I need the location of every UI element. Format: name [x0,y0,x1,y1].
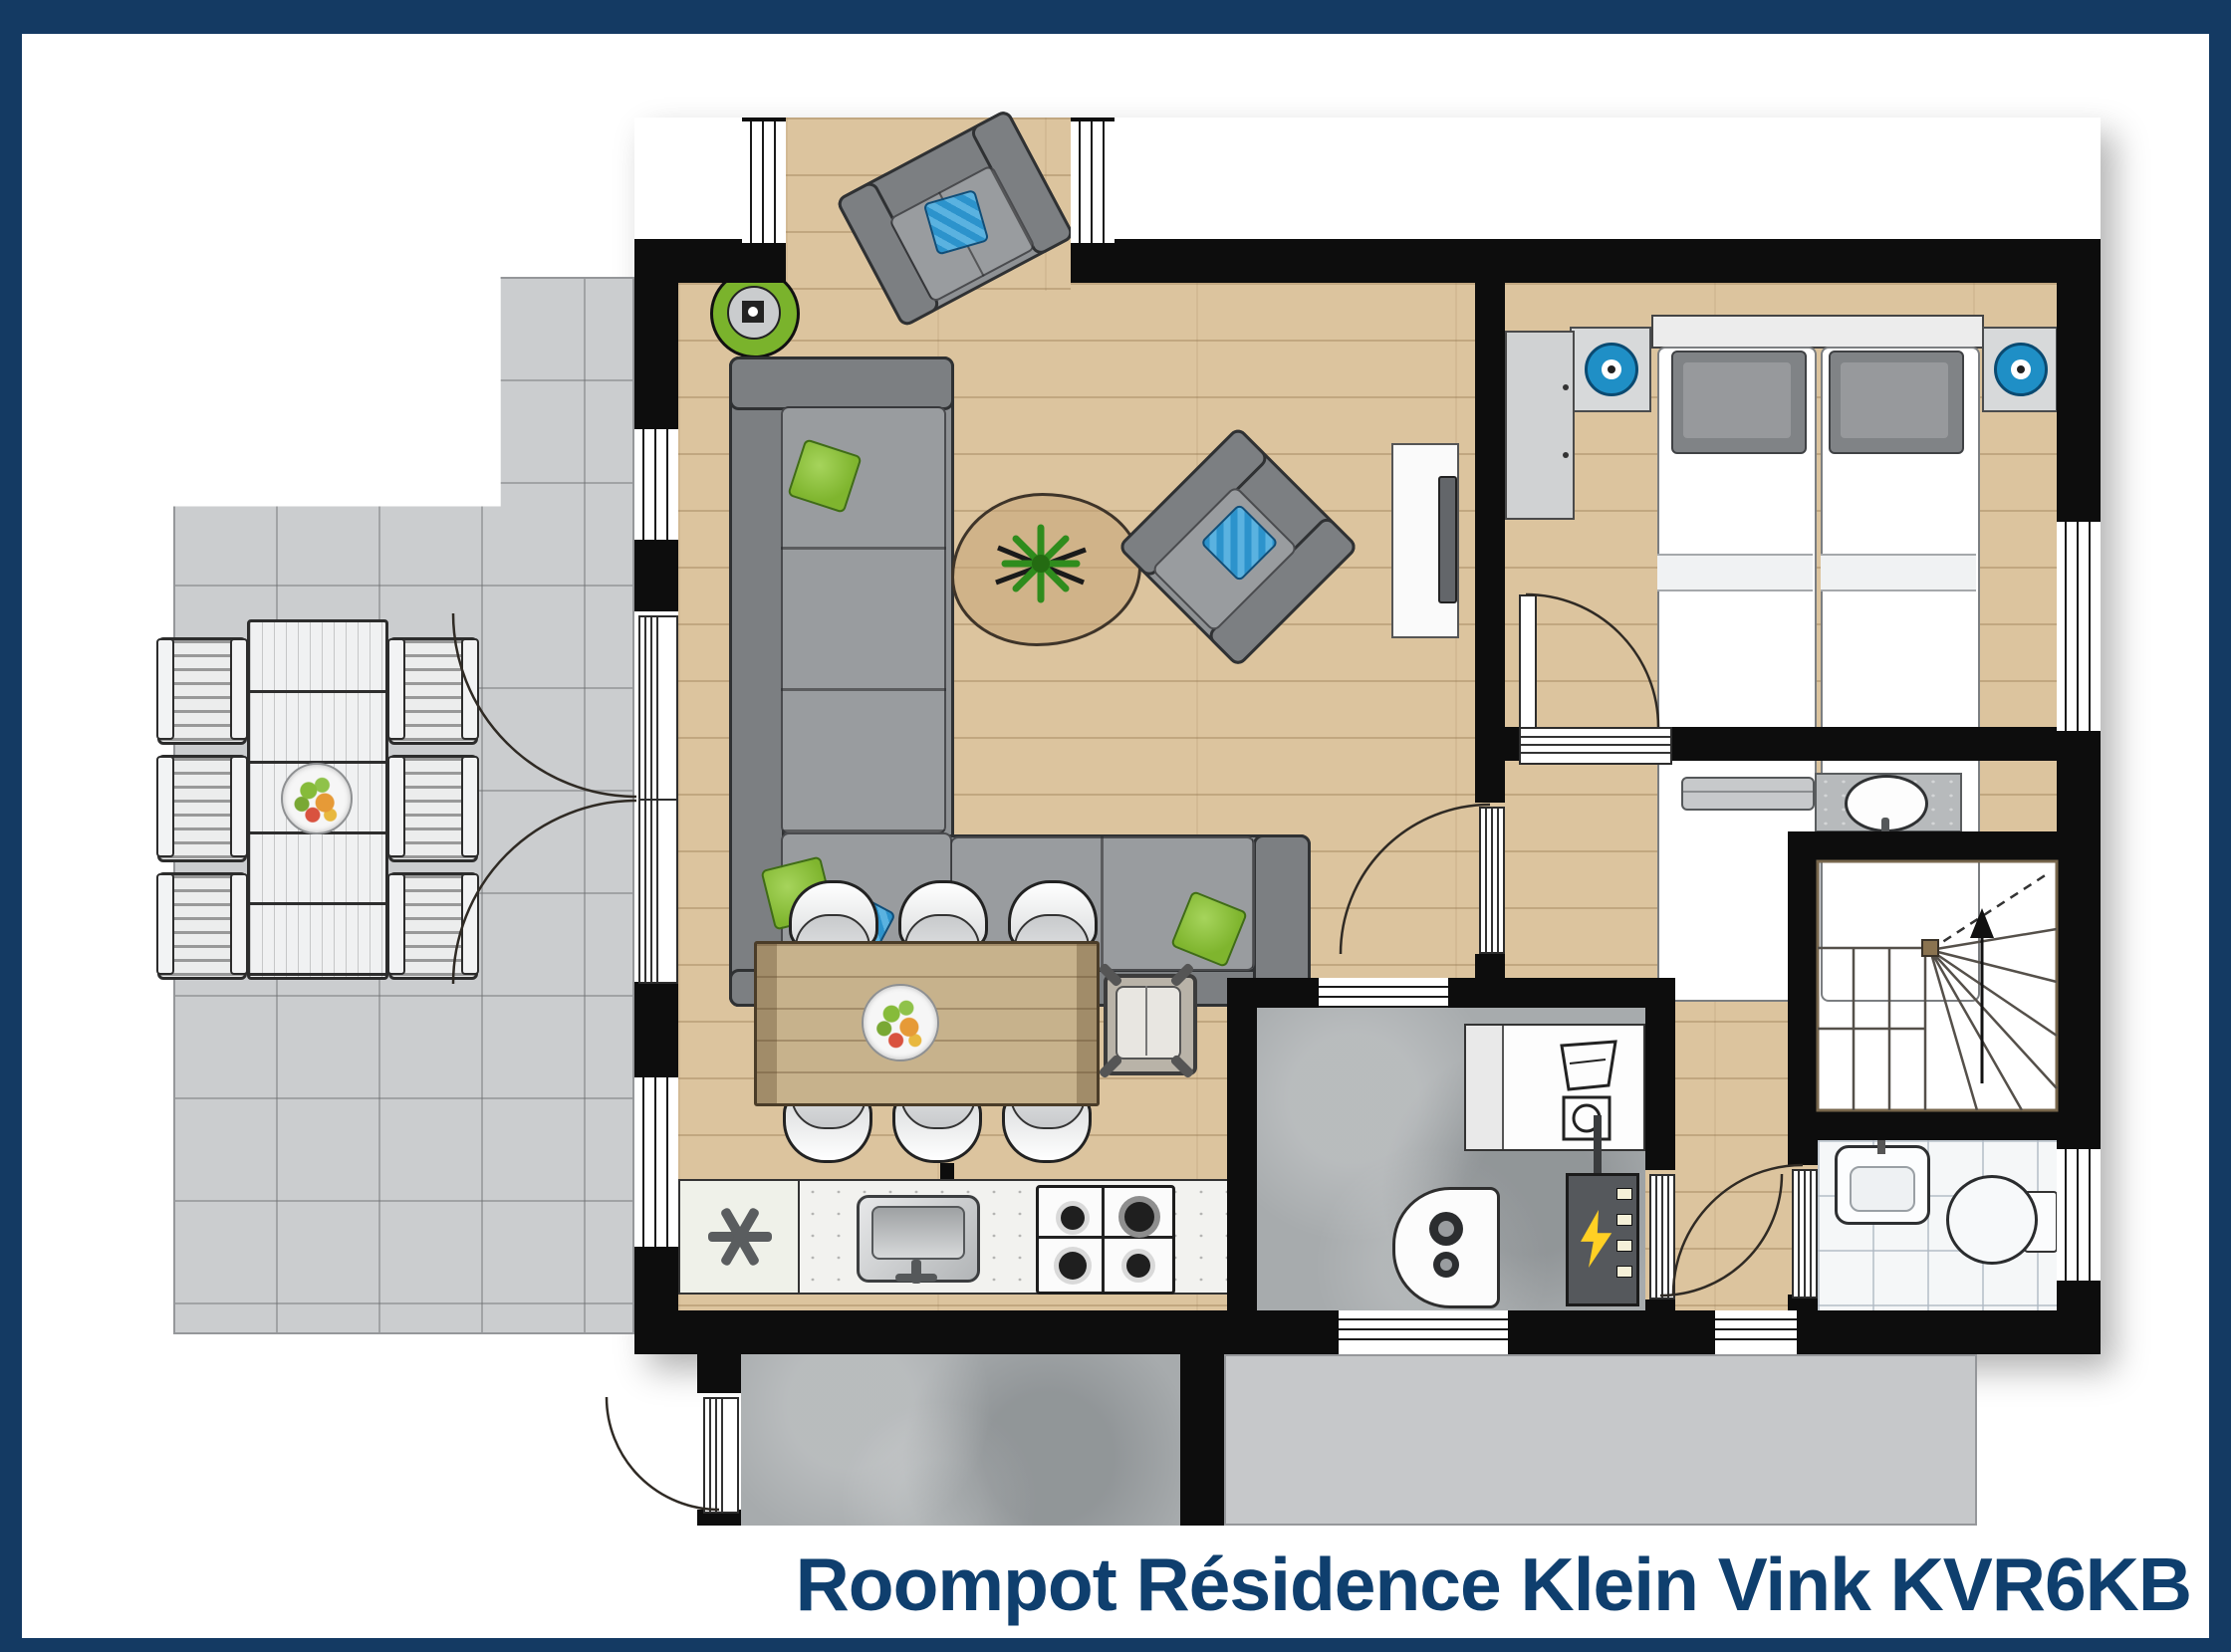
boiler [1392,1187,1500,1308]
outdoor-chair [157,872,247,980]
faucet [1877,1140,1885,1154]
wall-bedroom-south [1668,727,2057,761]
fruit-bowl [862,984,939,1062]
floorplan: Roompot Résidence Klein Vink KVR6KB [0,0,2231,1652]
wardrobe [1505,331,1575,520]
wall-west [634,982,678,1073]
bay-window-right [1071,118,1115,247]
kitchen-sink [857,1195,980,1283]
washbasin [1845,775,1928,832]
wall-living-bedroom [1475,283,1505,727]
bedroom-window [2057,518,2101,735]
page-title: Roompot Résidence Klein Vink KVR6KB [796,1541,2191,1627]
nightstand [1570,327,1651,412]
sheet-fold [1657,554,1813,591]
wall-utility-east [1645,1008,1675,1170]
nightstand [1982,327,2058,412]
hall-window [1711,1310,1801,1354]
pillow [1829,351,1964,454]
living-window-upper [634,425,678,544]
dryer-icon [1564,1097,1610,1139]
bedroom-door-threshold [1519,727,1672,765]
hand-basin [1835,1145,1930,1225]
wall-utility-east [1645,1299,1675,1310]
sheet-fold [1821,554,1976,591]
washer-dryer [1464,1024,1645,1151]
pillow [1671,351,1807,454]
bathroom-door-leaf [1792,1169,1818,1298]
fuse-box [1566,1173,1639,1306]
wall-west [634,536,678,611]
wall-west [634,1243,678,1354]
wall-stairs-north [1788,831,2057,861]
storage-room-floor [741,1354,1180,1526]
outdoor-chair [388,755,478,862]
outdoor-chair [388,637,478,745]
wall-living-hall [1475,761,1505,803]
tv [1438,476,1457,603]
wall-bedroom-south [1475,727,1519,761]
bay-window-left [742,118,786,247]
wall-west [634,283,678,425]
wall-utility-north [1444,978,1675,1008]
wall-stairs-south [1788,1110,2057,1140]
utility-window [1335,1310,1512,1354]
radiator [1681,777,1815,811]
fruit-bowl [281,763,353,834]
wall-east [2057,727,2101,1145]
wall-utility-north [1227,978,1315,1008]
living-window-lower [634,1073,678,1251]
wall-south [1793,1310,2101,1354]
washer-icon [1562,1042,1615,1089]
outdoor-chair [388,872,478,980]
wall-east [2057,283,2101,518]
lightning-icon [1577,1210,1616,1268]
page-frame: Roompot Résidence Klein Vink KVR6KB [0,0,2231,1652]
terrace-door-leaf [638,615,678,801]
terrace-door-leaf [638,799,678,984]
toilet-bowl [1946,1175,2038,1265]
fuse-box-pipe [1594,1115,1602,1175]
outdoor-chair [157,637,247,745]
utility-door-leaf [1649,1174,1675,1299]
bed-headboard [1651,315,1984,349]
freezer-cabinet [678,1179,802,1295]
bedroom-door [1519,594,1537,731]
wall-south [1504,1310,1711,1354]
patio-floor [1224,1354,1977,1526]
wall-north-right [1071,239,2101,283]
storage-door-leaf [703,1397,739,1514]
counter-post [940,1163,954,1179]
wall-south [634,1310,1335,1354]
wall-storage-east [1180,1354,1224,1526]
bathroom-window [2057,1145,2101,1285]
floorplan-canvas: Roompot Résidence Klein Vink KVR6KB [22,34,2209,1638]
wall-utility-west [1227,1008,1257,1310]
hall-door-leaf [1479,807,1505,954]
gas-hob [1036,1185,1175,1295]
outdoor-chair [157,755,247,862]
utility-hatch-window [1315,978,1452,1008]
wall-storage-west [697,1354,741,1393]
high-chair [1104,974,1197,1075]
